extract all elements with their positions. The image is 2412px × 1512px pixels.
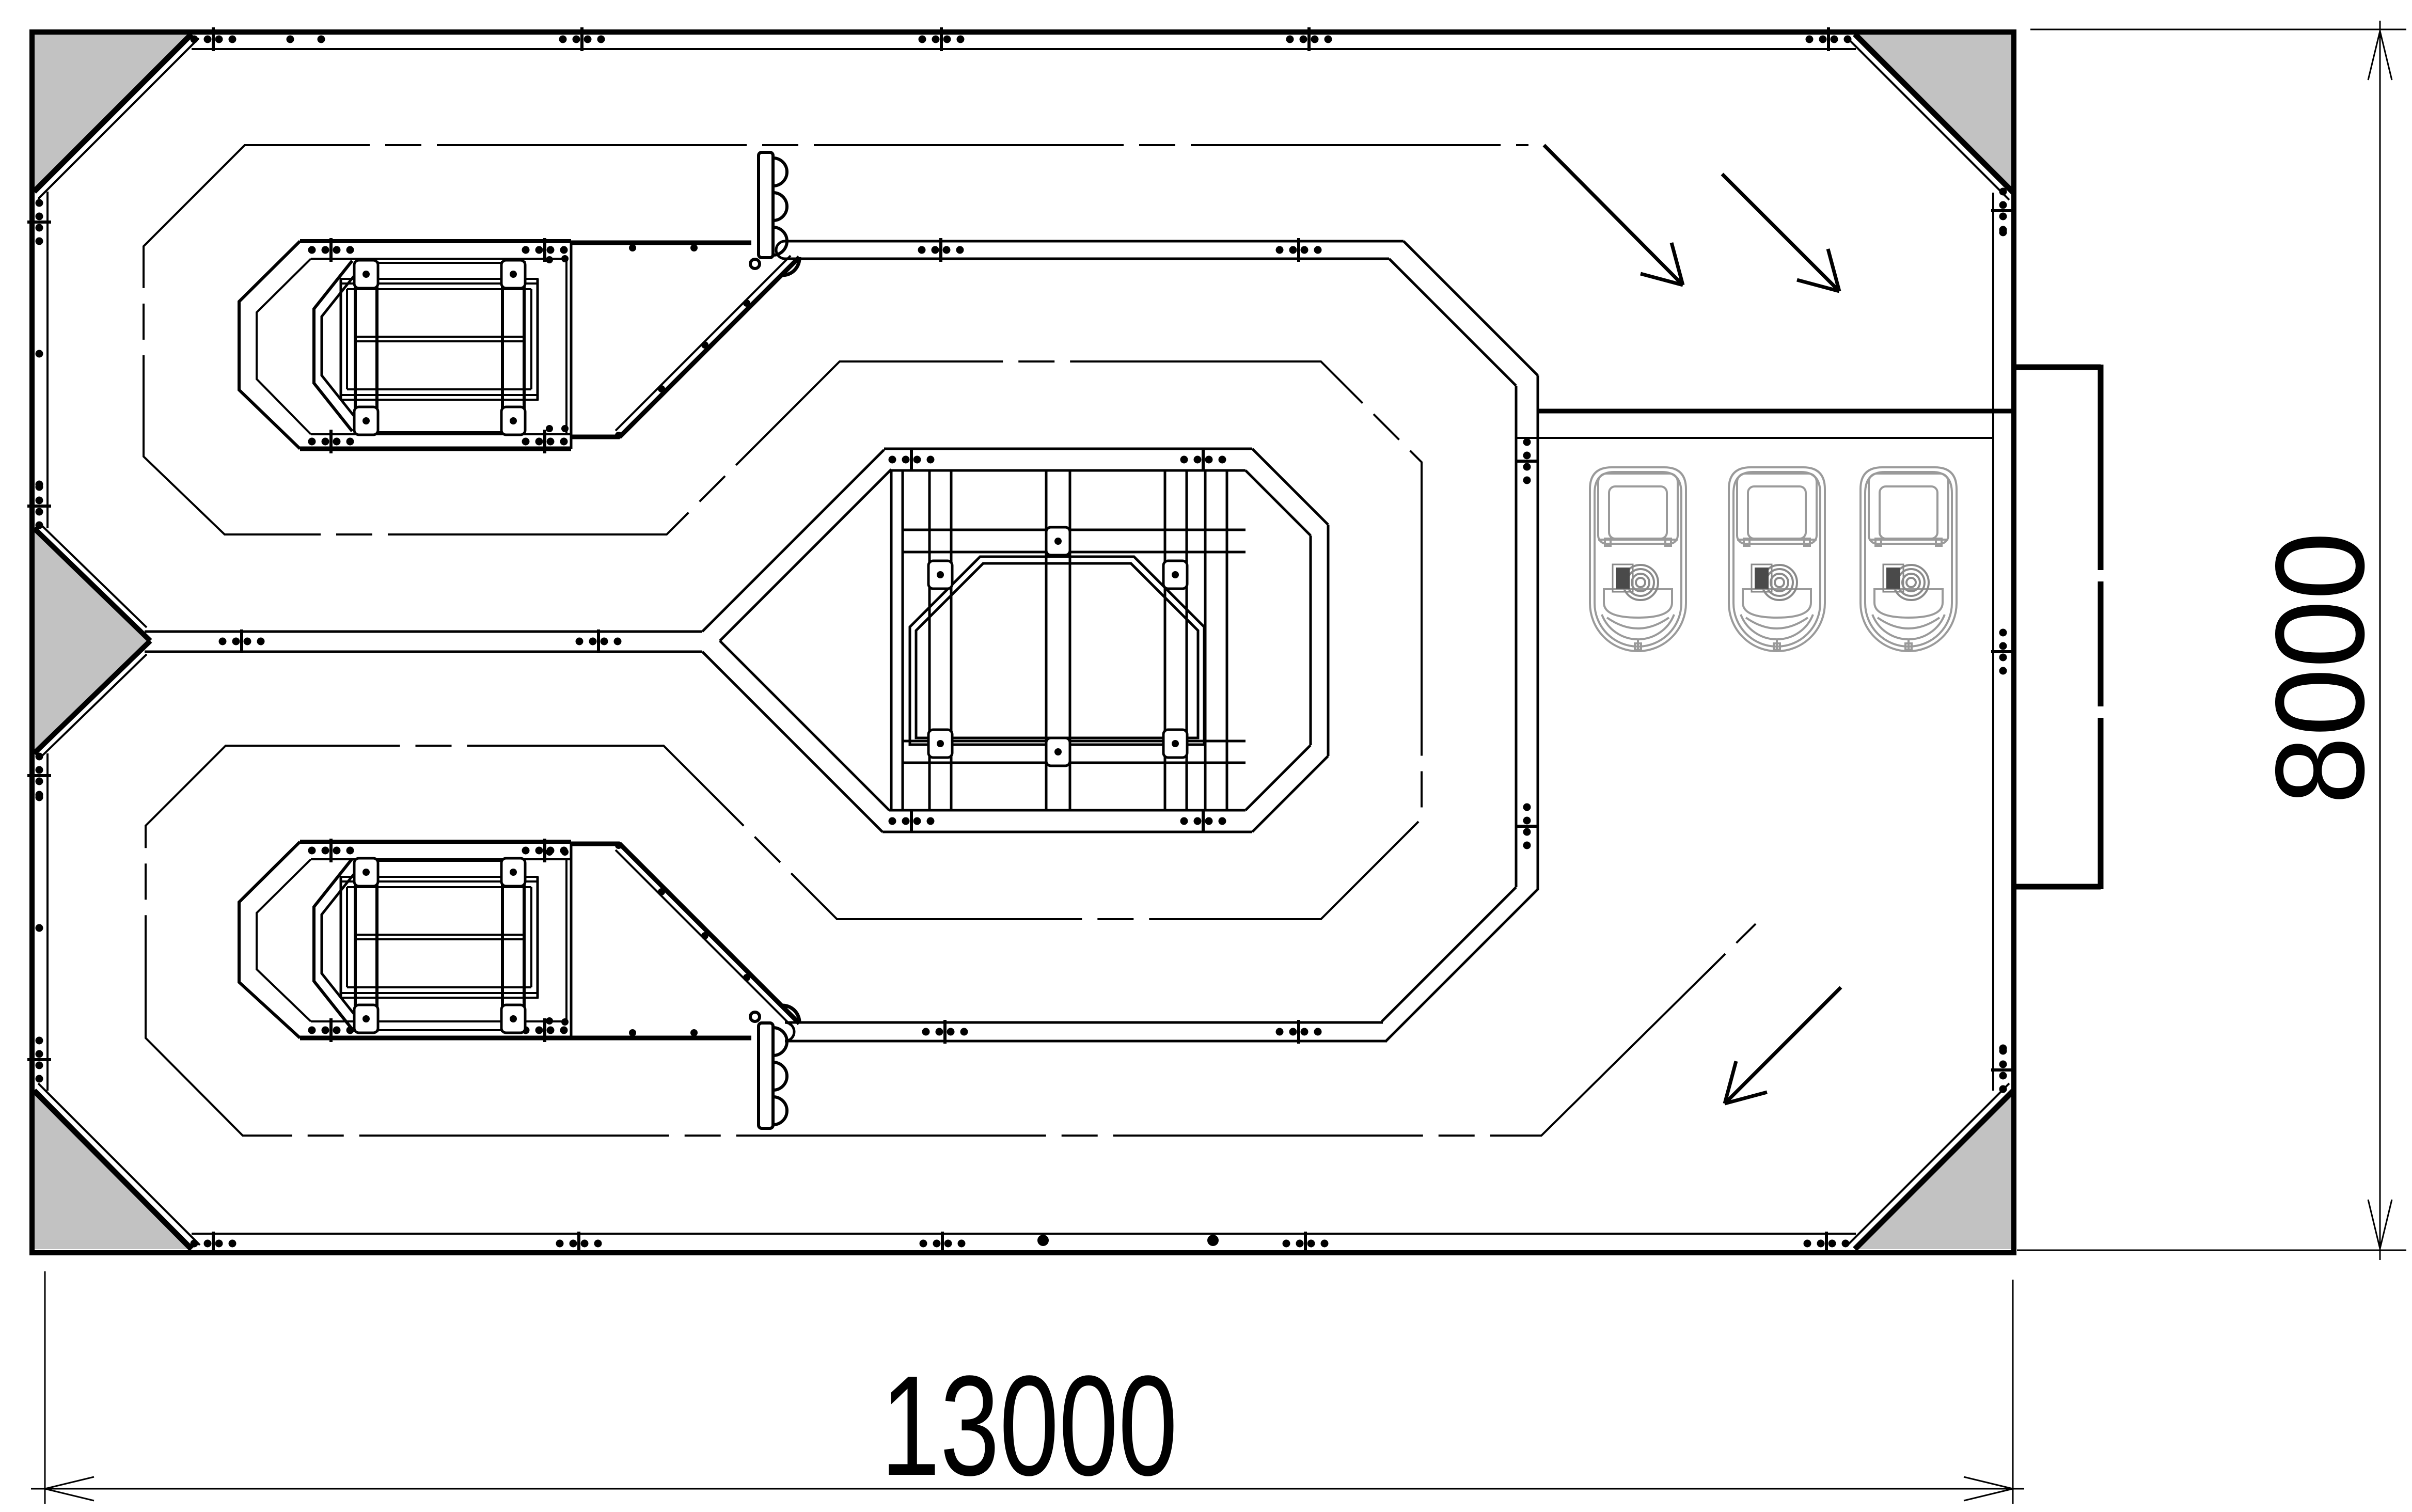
- svg-text:13000: 13000: [881, 1346, 1178, 1505]
- svg-text:8000: 8000: [2249, 532, 2390, 805]
